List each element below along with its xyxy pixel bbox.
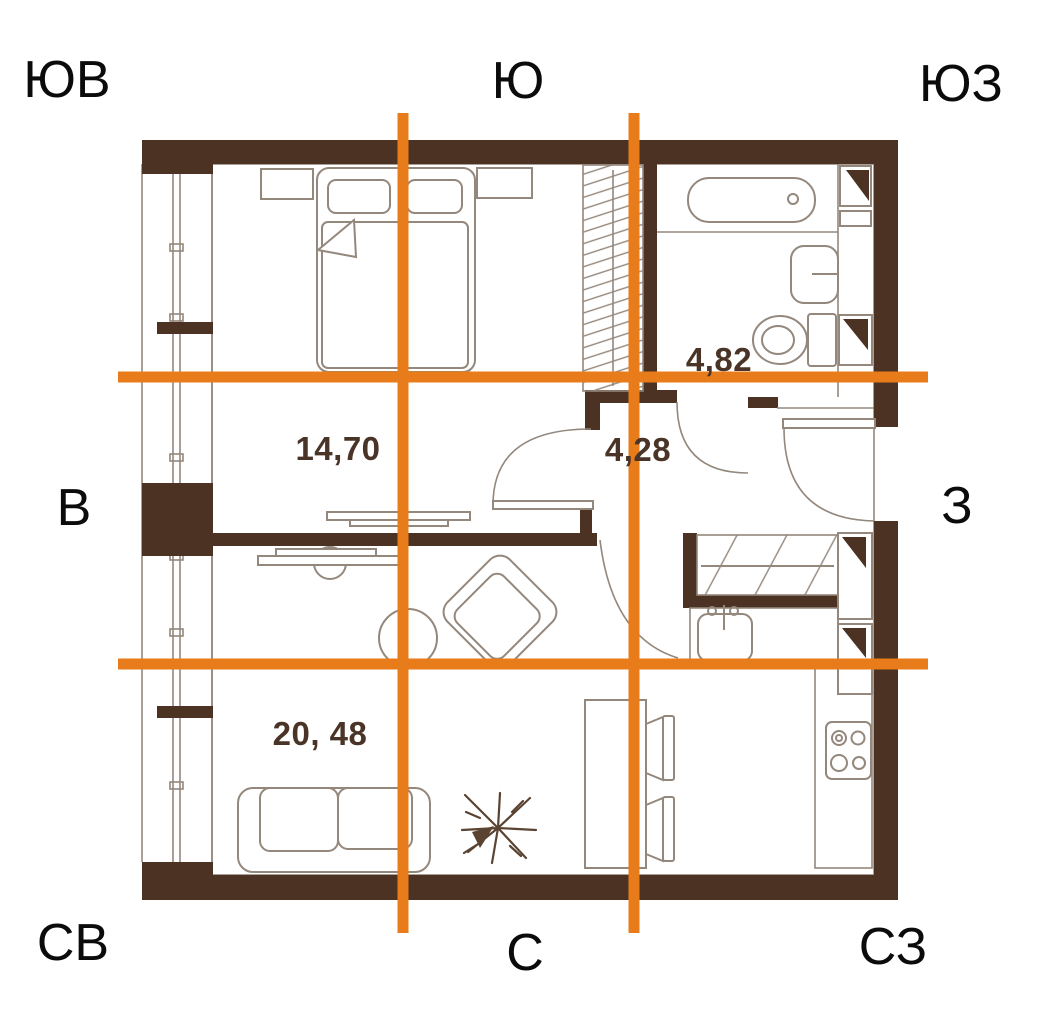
entrance-door: [777, 408, 875, 521]
plant: [462, 793, 536, 863]
area-labels: 14,70 4,28 4,82 20, 48: [273, 341, 752, 752]
nightstand-right: [477, 168, 532, 198]
balcony-pier-lower: [157, 706, 213, 718]
bedroom: [261, 165, 643, 391]
bedroom-door-stub: [580, 510, 592, 536]
fridge: [838, 533, 872, 619]
cabinet-unit: [839, 315, 872, 365]
left-column: [142, 483, 213, 556]
right-wall-upper: [874, 164, 898, 427]
living-room: [238, 512, 674, 872]
toilet: [753, 314, 836, 366]
shelf-unit-top: [840, 166, 871, 226]
compass-top-right: ЮЗ: [919, 55, 1003, 113]
top-left-ledge: [142, 164, 213, 174]
washbasin: [791, 246, 838, 303]
compass-bottom-left: СВ: [37, 914, 109, 972]
top-wall: [142, 140, 898, 164]
compass-bottom-right: СЗ: [859, 918, 927, 976]
coat-rack: [697, 535, 838, 595]
floor-plan-canvas: 14,70 4,28 4,82 20, 48 ЮВ Ю ЮЗ В З СВ С …: [0, 0, 1049, 1024]
compass-mid-right: З: [941, 477, 972, 535]
console-table-lower: [258, 547, 402, 579]
right-wall-lower: [874, 521, 898, 900]
double-bed: [317, 168, 475, 372]
cooktop: [826, 722, 871, 779]
bedroom-door: [493, 429, 593, 509]
kitchen-sink: [698, 605, 752, 661]
compass-bottom-center: С: [506, 924, 544, 982]
compass-mid-left: В: [57, 479, 92, 537]
bedroom-area-label: 14,70: [295, 430, 380, 467]
walls: [142, 140, 898, 900]
living-area-label: 20, 48: [273, 715, 368, 752]
bottom-wall: [212, 875, 898, 900]
floor-plan-svg: 14,70 4,28 4,82 20, 48 ЮВ Ю ЮЗ В З СВ С …: [0, 0, 1049, 1024]
nightstand-left: [261, 169, 313, 199]
inner-wall-outline: [212, 164, 874, 875]
closet-bottom-wall: [683, 595, 838, 608]
bathroom-left-wall: [643, 162, 657, 398]
pillow-left: [328, 180, 390, 213]
bottom-left-block: [142, 862, 213, 900]
balcony-pier-upper: [157, 322, 213, 334]
compass-top-left: ЮВ: [23, 51, 110, 109]
bathroom-door: [677, 402, 748, 473]
hallway-area-label: 4,28: [605, 431, 671, 468]
compass-top-center: Ю: [492, 52, 545, 110]
armchair: [438, 550, 562, 674]
bathroom-bottom-wall-right: [748, 397, 778, 408]
bathtub: [688, 178, 815, 222]
bathroom-area-label: 4,82: [686, 341, 752, 378]
dining-chair-2: [646, 797, 674, 861]
dining-chair-1: [646, 716, 674, 780]
pillow-right: [407, 180, 462, 213]
